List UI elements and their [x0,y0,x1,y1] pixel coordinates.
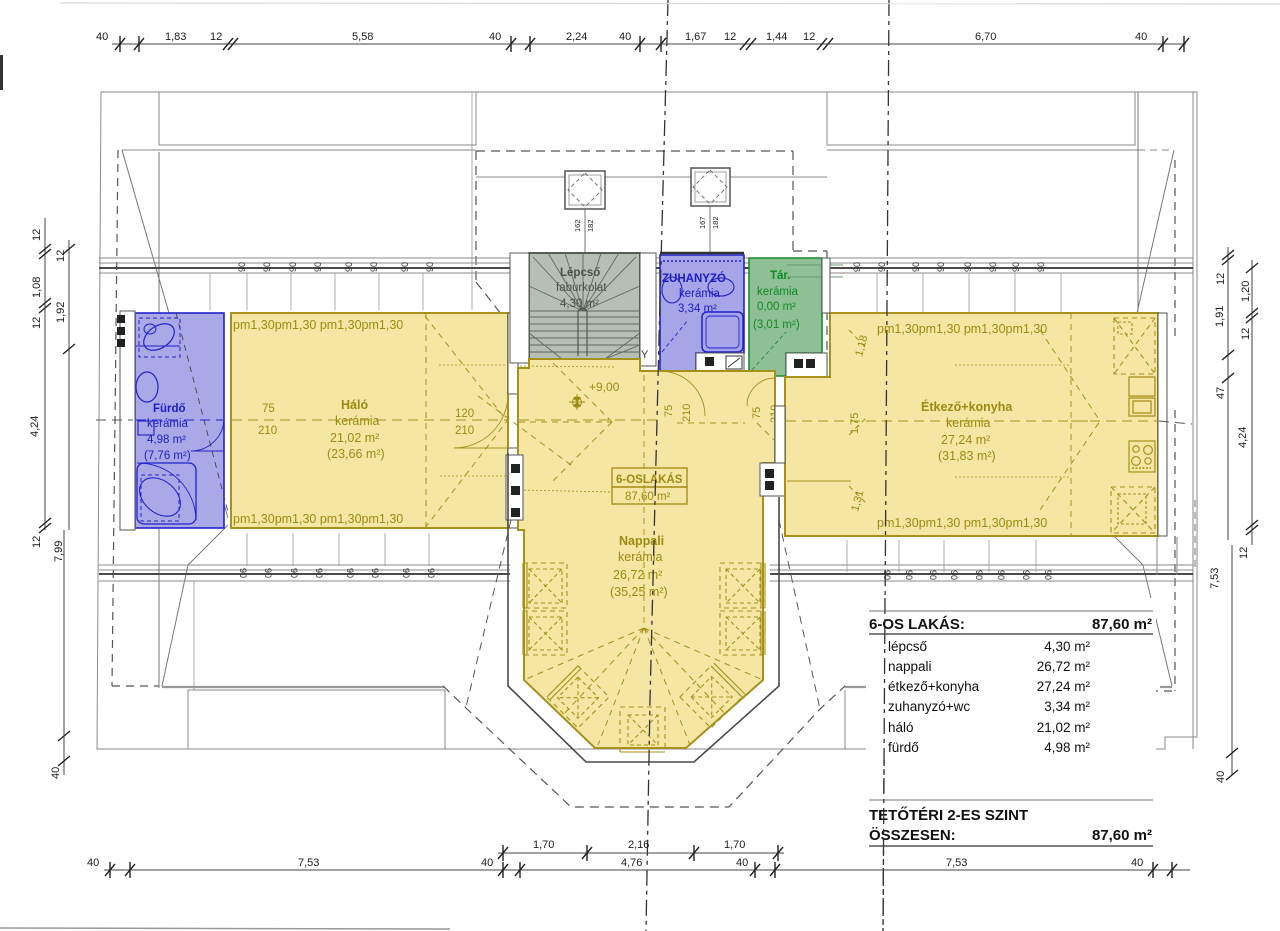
svg-text:21,02 m²: 21,02 m² [330,431,379,445]
svg-text:12: 12 [1238,547,1250,559]
svg-text:2,24: 2,24 [566,31,587,43]
svg-text:90: 90 [314,568,324,578]
svg-text:90: 90 [288,262,298,272]
svg-text:21,02 m²: 21,02 m² [1037,720,1091,735]
svg-text:Lépcső: Lépcső [560,267,600,279]
svg-text:5,58: 5,58 [352,31,373,43]
svg-text:90: 90 [974,570,984,580]
svg-text:2,16: 2,16 [628,839,649,851]
svg-text:kerámia: kerámia [618,550,663,564]
svg-text:90: 90 [928,570,938,580]
svg-text:167: 167 [698,216,707,229]
svg-text:40: 40 [1215,771,1227,783]
svg-text:40: 40 [619,31,631,43]
svg-text:pm1,30pm1,30 pm1,30pm1,30: pm1,30pm1,30 pm1,30pm1,30 [233,512,403,526]
svg-text:7,53: 7,53 [946,857,967,869]
svg-text:háló: háló [888,720,914,735]
svg-text:1,20: 1,20 [1240,281,1252,302]
svg-text:faburkolat: faburkolat [556,282,607,294]
svg-text:90: 90 [369,262,379,272]
svg-text:12: 12 [1240,328,1252,340]
svg-text:12: 12 [31,229,43,241]
svg-text:90: 90 [289,568,299,578]
svg-text:1,92: 1,92 [55,302,67,323]
svg-text:kerámia: kerámia [946,416,991,430]
svg-text:90: 90 [345,568,355,578]
svg-text:90: 90 [904,570,914,580]
svg-text:4,24: 4,24 [1237,427,1249,448]
svg-text:7,53: 7,53 [298,857,319,869]
svg-text:90: 90 [1021,570,1031,580]
svg-text:0,00 m²: 0,00 m² [757,301,796,313]
svg-text:75: 75 [751,407,763,419]
svg-text:90: 90 [996,570,1006,580]
svg-text:12: 12 [803,31,815,43]
svg-text:Nappali: Nappali [619,534,664,548]
svg-text:kerámia: kerámia [335,414,380,428]
svg-text:120: 120 [455,408,474,420]
svg-text:90: 90 [852,262,862,272]
svg-text:87,60 m²: 87,60 m² [1092,827,1152,844]
svg-text:Tár.: Tár. [770,270,790,282]
svg-text:+9,00: +9,00 [589,380,620,394]
svg-text:nappali: nappali [888,659,932,674]
svg-text:90: 90 [262,262,272,272]
svg-text:4,76: 4,76 [621,857,642,869]
svg-text:40: 40 [481,857,493,869]
svg-text:90: 90 [344,262,354,272]
svg-text:pm1,30pm1,30 pm1,30pm1,30: pm1,30pm1,30 pm1,30pm1,30 [877,516,1047,530]
svg-text:TETŐTÉRI 2-ES SZINT: TETŐTÉRI 2-ES SZINT [869,806,1028,824]
svg-text:Háló: Háló [341,398,368,412]
svg-text:12: 12 [1215,273,1227,285]
svg-text:4,30 m²: 4,30 m² [560,298,599,310]
svg-text:12: 12 [31,536,43,548]
svg-text:4,98 m²: 4,98 m² [1044,740,1090,755]
svg-text:1,08: 1,08 [31,277,43,298]
svg-text:lépcső: lépcső [888,639,927,654]
svg-text:4,98 m²: 4,98 m² [147,434,186,446]
svg-text:1,44: 1,44 [766,31,787,43]
svg-text:90: 90 [237,262,247,272]
svg-text:26,72 m²: 26,72 m² [613,568,662,582]
svg-text:zuhanyzó+wc: zuhanyzó+wc [888,699,970,714]
svg-text:(3,01 m²): (3,01 m²) [753,319,800,331]
svg-text:90: 90 [401,568,411,578]
svg-text:3,34 m²: 3,34 m² [1044,699,1090,714]
svg-text:12: 12 [31,317,43,329]
svg-text:(23,66 m²): (23,66 m²) [327,447,385,461]
svg-text:90: 90 [1043,570,1053,580]
svg-text:40: 40 [96,31,108,43]
svg-text:75: 75 [663,405,675,417]
svg-text:40: 40 [87,857,99,869]
svg-text:90: 90 [400,262,410,272]
svg-text:90: 90 [949,570,959,580]
svg-text:87,60 m²: 87,60 m² [1092,616,1152,633]
svg-text:7,53: 7,53 [1209,568,1221,589]
svg-text:210: 210 [681,404,693,422]
svg-text:Fürdő: Fürdő [153,403,186,415]
svg-text:27,24 m²: 27,24 m² [1037,679,1091,694]
svg-text:90: 90 [877,262,887,272]
svg-text:162: 162 [573,219,582,232]
svg-text:étkező+konyha: étkező+konyha [888,679,980,694]
svg-text:40: 40 [1131,857,1143,869]
svg-text:90: 90 [263,568,273,578]
svg-text:6,70: 6,70 [975,31,996,43]
svg-text:210: 210 [455,425,474,437]
svg-text:1,91: 1,91 [1214,306,1226,327]
svg-text:40: 40 [50,767,62,779]
svg-text:kerámia: kerámia [679,288,721,300]
svg-text:(35,25 m²): (35,25 m²) [610,585,668,599]
svg-text:210: 210 [258,425,277,437]
svg-text:6-OSLAKÁS: 6-OSLAKÁS [616,473,683,486]
svg-text:Étkező+konyha: Étkező+konyha [921,399,1013,414]
svg-text:75: 75 [262,403,275,415]
svg-text:90: 90 [238,568,248,578]
svg-text:(31,83 m²): (31,83 m²) [938,449,996,463]
svg-text:1,75: 1,75 [849,413,861,434]
svg-text:kerámia: kerámia [757,286,799,298]
svg-text:12: 12 [55,250,67,262]
svg-text:Y: Y [641,349,649,361]
svg-text:90: 90 [911,262,921,272]
svg-text:6-OS LAKÁS:: 6-OS LAKÁS: [869,616,965,633]
svg-text:1,67: 1,67 [685,31,706,43]
svg-text:12: 12 [210,31,222,43]
svg-text:90: 90 [936,262,946,272]
svg-text:182: 182 [586,219,595,232]
svg-text:90: 90 [988,262,998,272]
svg-text:87,60 m²: 87,60 m² [625,491,671,503]
svg-text:40: 40 [489,31,501,43]
svg-text:(7,76 m²): (7,76 m²) [144,450,191,462]
svg-text:47: 47 [1215,387,1227,399]
svg-text:1,83: 1,83 [165,31,186,43]
svg-text:40: 40 [736,857,748,869]
svg-text:ÖSSZESEN:: ÖSSZESEN: [869,827,956,844]
svg-text:1,70: 1,70 [533,839,554,851]
svg-text:4,24: 4,24 [29,416,41,437]
svg-text:90: 90 [426,568,436,578]
svg-text:27,24 m²: 27,24 m² [941,433,990,447]
svg-text:3,34 m²: 3,34 m² [678,303,717,315]
svg-text:12: 12 [724,31,736,43]
svg-text:182: 182 [711,216,720,229]
svg-text:90: 90 [425,262,435,272]
svg-text:7,99: 7,99 [53,541,65,562]
svg-text:90: 90 [882,570,892,580]
svg-text:90: 90 [1011,262,1021,272]
svg-text:90: 90 [963,262,973,272]
svg-text:40: 40 [1135,31,1147,43]
svg-text:90: 90 [370,568,380,578]
svg-text:1,70: 1,70 [724,839,745,851]
svg-text:4,30 m²: 4,30 m² [1044,639,1090,654]
svg-text:90: 90 [1036,262,1046,272]
svg-text:90: 90 [313,262,323,272]
svg-text:26,72 m²: 26,72 m² [1037,659,1091,674]
svg-text:pm1,30pm1,30 pm1,30pm1,30: pm1,30pm1,30 pm1,30pm1,30 [877,322,1047,336]
svg-text:pm1,30pm1,30 pm1,30pm1,30: pm1,30pm1,30 pm1,30pm1,30 [233,318,403,332]
svg-text:fürdő: fürdő [888,740,919,755]
